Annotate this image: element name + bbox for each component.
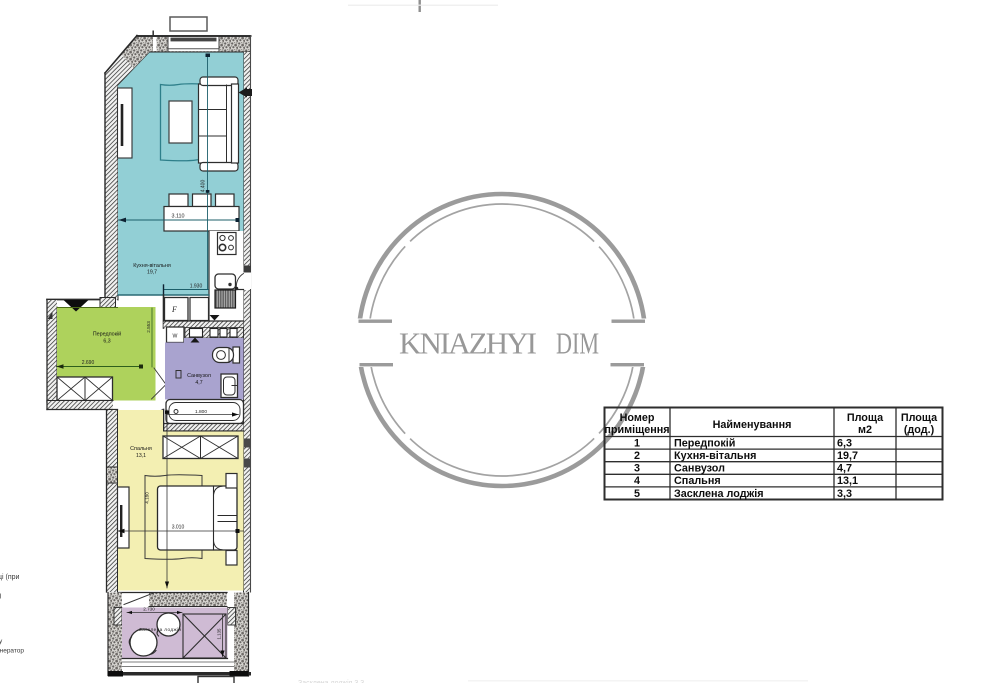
svg-text:KNIAZHYI: KNIAZHYI: [399, 326, 537, 361]
svg-text:4.180: 4.180: [145, 492, 150, 504]
svg-text:F: F: [171, 305, 177, 314]
svg-text:19,7: 19,7: [147, 270, 157, 276]
svg-text:Передпокій: Передпокій: [674, 438, 735, 450]
svg-text:19,7: 19,7: [837, 450, 858, 462]
svg-text:Передпокій: Передпокій: [93, 331, 121, 338]
svg-text:Спальня: Спальня: [674, 475, 721, 487]
svg-text:3.010: 3.010: [172, 525, 185, 531]
svg-text:1: 1: [634, 438, 640, 450]
svg-text:3.110: 3.110: [171, 214, 184, 220]
svg-text:13,1: 13,1: [837, 475, 858, 487]
svg-text:Площа: Площа: [901, 412, 938, 424]
svg-text:Кухня-вітальня: Кухня-вітальня: [674, 450, 756, 462]
svg-text:2.553: 2.553: [146, 321, 151, 333]
svg-text:13,1: 13,1: [136, 453, 146, 459]
svg-text:Засклена лоджія: Засклена лоджія: [139, 627, 182, 632]
svg-text:1.930: 1.930: [190, 284, 203, 290]
svg-text:2.730: 2.730: [143, 607, 155, 612]
svg-text:Номер: Номер: [620, 412, 655, 424]
svg-text:3: 3: [634, 463, 640, 475]
svg-text:Найменування: Найменування: [713, 419, 792, 431]
svg-text:Санвузол: Санвузол: [187, 373, 211, 379]
svg-text:): ): [0, 593, 1, 600]
svg-text:м2: м2: [858, 424, 872, 436]
svg-text:W: W: [173, 334, 178, 340]
svg-text:4,7: 4,7: [837, 463, 852, 475]
svg-text:4,7: 4,7: [195, 380, 202, 386]
svg-text:DIM: DIM: [556, 326, 599, 361]
svg-text:(дод.): (дод.): [904, 424, 935, 436]
svg-text:5: 5: [634, 488, 640, 500]
svg-text:Площа: Площа: [847, 412, 884, 424]
svg-text:6,3: 6,3: [837, 438, 852, 450]
svg-text:енератор: енератор: [0, 648, 24, 655]
svg-text:Спальня: Спальня: [130, 446, 152, 452]
svg-text:3,3: 3,3: [837, 488, 852, 500]
svg-text:6,3: 6,3: [103, 339, 110, 345]
svg-text:2.690: 2.690: [82, 360, 95, 366]
svg-text:2: 2: [634, 450, 640, 462]
svg-text:Санвузол: Санвузол: [674, 463, 725, 475]
svg-text:ці (при: ці (при: [0, 573, 20, 581]
svg-text:Кухня-вітальня: Кухня-вітальня: [133, 263, 171, 269]
svg-text:1.800: 1.800: [195, 409, 207, 415]
svg-text:4: 4: [634, 475, 640, 487]
svg-text:Засклена лоджія: Засклена лоджія: [674, 488, 764, 500]
svg-text:Засклена лоджія 3,3: Засклена лоджія 3,3: [298, 679, 364, 683]
svg-text:1.135: 1.135: [217, 628, 222, 640]
svg-text:4.400: 4.400: [201, 180, 207, 193]
svg-text:приміщення: приміщення: [604, 424, 669, 436]
